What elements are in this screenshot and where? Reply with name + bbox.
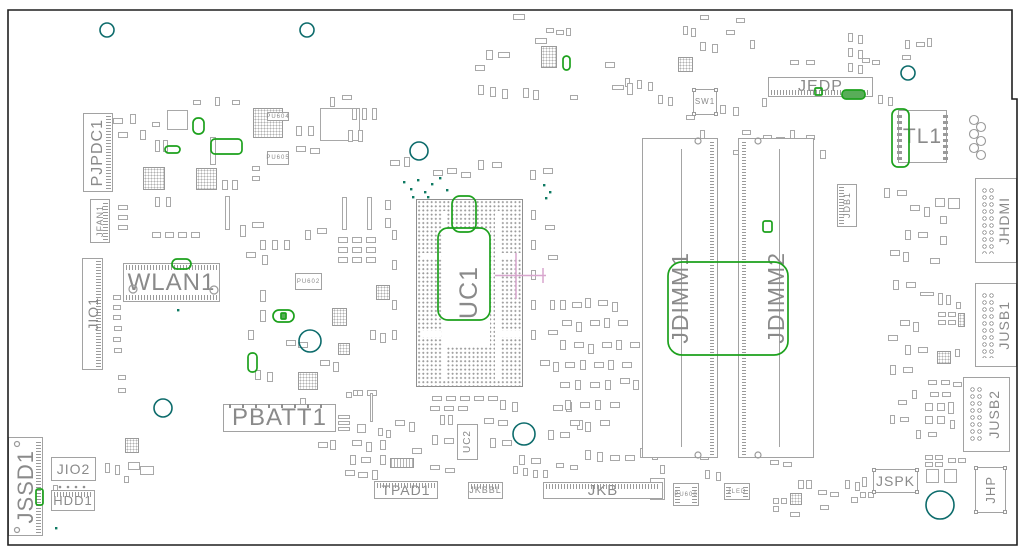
qfn-ic: [196, 168, 217, 190]
passive-component: [937, 403, 945, 411]
passive-component: [352, 440, 362, 446]
passive-component: [790, 512, 800, 517]
passive-component: [338, 257, 348, 263]
passive-component: [252, 222, 264, 228]
passive-component: [848, 33, 853, 42]
uc2-label: UC2: [463, 430, 473, 453]
passive-component: [346, 392, 352, 398]
passive-component: [860, 492, 866, 498]
passive-component: [855, 482, 860, 491]
passive-component: [193, 100, 201, 105]
via-dot: [424, 191, 426, 193]
passive-component: [897, 190, 907, 196]
passive-component: [893, 280, 899, 290]
passive-component: [380, 455, 386, 465]
pin-dot: [59, 486, 62, 489]
component-jdb1: JDB1: [837, 184, 857, 227]
passive-component: [444, 406, 454, 411]
passive-component: [930, 258, 940, 264]
passive-component: [548, 255, 558, 260]
passive-component: [366, 442, 372, 452]
pcb-boardview-diagram: PJPDC1JFAN1JIO1JSSD1JIO2HDD1WLAN1PBATT1U…: [0, 0, 1025, 552]
passive-component: [543, 168, 553, 174]
via-dot: [545, 197, 547, 199]
passive-component: [490, 438, 496, 448]
passive-component: [166, 197, 171, 207]
passive-component: [370, 330, 376, 340]
passive-component: [395, 420, 405, 426]
passive-component: [305, 230, 311, 240]
wlan1-label: WLAN1: [128, 271, 216, 295]
component-pu605: PU605: [267, 151, 289, 165]
passive-component: [380, 440, 386, 450]
passive-component: [570, 95, 578, 100]
passive-component: [210, 137, 216, 165]
passive-component: [872, 60, 880, 65]
passive-component: [155, 197, 160, 207]
passive-component: [310, 148, 320, 154]
passive-component: [903, 367, 913, 373]
passive-component: [338, 247, 348, 253]
passive-component: [726, 30, 735, 35]
passive-component: [820, 505, 829, 510]
qfn-ic: [298, 372, 318, 390]
passive-component: [498, 420, 508, 426]
passive-component: [630, 342, 640, 348]
component-pbatt1: PBATT1: [223, 404, 336, 432]
passive-component: [878, 95, 883, 104]
passive-component: [924, 207, 930, 217]
passive-component: [798, 480, 804, 489]
passive-component: [113, 315, 121, 320]
passive-component: [594, 362, 604, 368]
passive-component: [935, 198, 945, 207]
passive-component: [938, 312, 946, 317]
passive-component: [447, 168, 457, 174]
passive-component: [862, 58, 870, 63]
pin-hatch: [106, 116, 111, 189]
passive-component: [920, 292, 934, 296]
passive-component: [585, 450, 591, 460]
passive-component: [519, 455, 525, 465]
passive-component: [912, 390, 917, 399]
qfn-ic: [376, 285, 390, 300]
jusb2-label: JUSB2: [987, 390, 1001, 439]
passive-component: [298, 342, 308, 348]
passive-component: [385, 200, 391, 210]
jspk-label: JSPK: [876, 474, 915, 488]
passive-component: [851, 497, 858, 503]
corner-pad: [915, 490, 919, 494]
qfn-ic: [125, 438, 139, 453]
bga-void: [421, 253, 441, 259]
passive-component: [490, 87, 496, 97]
passive-component: [612, 302, 618, 312]
component-jhdmi: JHDMI: [975, 178, 1017, 263]
pin-dot: [67, 486, 70, 489]
passive-component: [612, 85, 624, 90]
green-highlight-mark: [563, 56, 570, 70]
passive-component: [474, 396, 484, 401]
passive-component: [597, 452, 603, 462]
passive-component: [286, 340, 296, 346]
passive-component: [806, 60, 815, 65]
passive-component: [903, 252, 909, 262]
passive-component: [240, 225, 246, 237]
pin-hatch: [897, 113, 902, 160]
passive-component: [588, 344, 594, 354]
passive-component: [553, 362, 559, 372]
passive-component: [444, 438, 454, 444]
passive-component: [333, 362, 339, 372]
component-jedp: JEDP: [768, 77, 873, 97]
passive-component: [113, 337, 121, 342]
passive-component: [888, 97, 893, 106]
passive-component: [163, 140, 168, 152]
passive-component: [773, 506, 779, 512]
mounting-hole: [100, 23, 114, 37]
passive-component: [392, 230, 397, 240]
passive-component: [608, 360, 614, 370]
passive-component: [345, 470, 355, 476]
passive-component: [512, 402, 518, 412]
passive-component: [948, 458, 956, 463]
passive-component: [716, 472, 721, 481]
passive-component: [366, 237, 376, 243]
component-jusb1: JUSB1: [975, 283, 1017, 367]
component-pu600: PU600: [673, 483, 699, 506]
passive-component: [602, 342, 612, 348]
passive-component: [358, 472, 368, 478]
passive-component: [946, 295, 951, 305]
passive-component: [770, 460, 779, 465]
passive-component: [830, 492, 839, 497]
passive-component: [545, 225, 555, 230]
passive-component: [260, 240, 266, 250]
passive-component: [535, 38, 547, 44]
passive-component: [580, 402, 590, 408]
passive-component: [357, 424, 366, 433]
passive-component: [546, 28, 554, 33]
component-tl1: TL1: [898, 110, 947, 163]
passive-component: [320, 360, 330, 366]
passive-component: [118, 205, 128, 210]
passive-component: [284, 240, 290, 250]
jdb1-label: JDB1: [843, 192, 852, 218]
passive-component: [531, 330, 536, 340]
bga-void: [442, 211, 447, 381]
passive-component: [361, 457, 371, 463]
component-jhp: JHP: [975, 467, 1006, 513]
corner-pad: [974, 466, 978, 470]
component-uc1: UC1: [416, 199, 523, 387]
passive-component: [565, 362, 575, 368]
passive-component: [683, 26, 688, 35]
passive-component: [350, 455, 356, 465]
passive-component: [533, 470, 538, 478]
passive-component: [937, 416, 945, 424]
passive-component: [600, 420, 610, 426]
passive-component: [262, 255, 268, 265]
passive-component: [330, 440, 336, 450]
corner-pad: [872, 490, 876, 494]
passive-component: [409, 422, 415, 432]
passive-component: [272, 240, 278, 250]
component-jio2: JIO2: [51, 457, 96, 481]
passive-component: [392, 330, 397, 340]
passive-component: [317, 228, 327, 234]
passive-component: [492, 162, 502, 168]
passive-component: [720, 105, 726, 114]
passive-component: [114, 326, 122, 331]
passive-component: [392, 260, 397, 270]
passive-component: [556, 463, 564, 468]
passive-component: [605, 62, 615, 68]
passive-component: [576, 322, 582, 332]
passive-component: [620, 378, 630, 384]
passive-component: [566, 28, 571, 36]
via-dot: [410, 188, 412, 190]
passive-component: [660, 465, 665, 474]
passive-component: [114, 348, 122, 353]
passive-component: [152, 122, 160, 127]
passive-component: [348, 130, 353, 142]
passive-component: [884, 188, 890, 198]
passive-component: [390, 160, 400, 166]
passive-component: [366, 257, 376, 263]
passive-component: [556, 30, 564, 35]
passive-component: [478, 160, 484, 170]
passive-component: [448, 415, 453, 425]
passive-component: [633, 380, 639, 390]
coil-winding: [977, 123, 986, 132]
jhp-label: JHP: [984, 476, 997, 504]
passive-component: [433, 170, 443, 176]
corner-pad: [974, 510, 978, 514]
passive-component: [553, 405, 563, 411]
passive-component: [700, 15, 709, 20]
passive-component: [938, 320, 946, 325]
passive-component: [925, 455, 933, 460]
passive-component: [165, 232, 174, 238]
passive-component: [668, 97, 673, 106]
passive-component: [913, 322, 919, 332]
passive-component: [916, 430, 921, 439]
passive-component: [572, 302, 582, 308]
passive-component: [916, 42, 925, 47]
passive-component: [543, 470, 548, 478]
bga-void: [501, 253, 521, 259]
passive-component: [927, 38, 932, 47]
qfn-ic: [678, 57, 693, 72]
passive-component: [700, 42, 706, 51]
passive-component: [944, 469, 957, 483]
passive-component: [733, 107, 739, 116]
passive-component: [820, 150, 826, 159]
passive-component: [950, 420, 955, 429]
via-dot: [543, 184, 545, 186]
passive-component: [432, 435, 438, 445]
passive-component: [953, 382, 962, 387]
passive-component: [590, 382, 600, 388]
passive-component: [222, 180, 228, 190]
passive-component: [533, 90, 539, 100]
passive-component: [118, 375, 126, 380]
passive-component: [461, 172, 471, 178]
passive-component: [370, 393, 373, 422]
passive-component: [948, 198, 960, 209]
passive-component: [845, 480, 850, 489]
passive-component: [118, 132, 128, 138]
pin-hatch: [943, 113, 948, 160]
passive-component: [595, 400, 601, 410]
pjpdc1-label: PJPDC1: [90, 119, 106, 186]
passive-component: [118, 388, 126, 393]
passive-component: [580, 360, 586, 370]
qfn-ic: [937, 351, 951, 364]
corner-pad: [714, 112, 718, 116]
pin-hatch: [726, 486, 731, 497]
component-jled: JLED: [724, 483, 750, 500]
passive-component: [604, 318, 610, 328]
pin-hatch: [771, 90, 870, 95]
passive-component: [523, 468, 528, 476]
corner-pad: [692, 88, 696, 92]
passive-component: [618, 320, 628, 326]
passive-component: [155, 140, 160, 152]
mounting-hole: [300, 23, 314, 37]
passive-component: [935, 462, 943, 467]
passive-component: [113, 295, 121, 300]
pin-dot: [83, 486, 86, 489]
component-pu604: PU604: [267, 112, 289, 121]
pbatt1-label: PBATT1: [232, 406, 327, 430]
passive-component: [890, 250, 900, 256]
passive-component: [958, 458, 966, 463]
qfn-ic: [332, 308, 347, 326]
passive-component: [531, 458, 541, 464]
passive-component: [267, 372, 273, 382]
corner-pad: [872, 468, 876, 472]
passive-component: [548, 430, 554, 440]
corner-pad: [1003, 466, 1007, 470]
passive-component: [296, 146, 306, 152]
via-dot: [403, 181, 405, 183]
passive-component: [610, 402, 620, 408]
green-highlight-mark: [273, 310, 294, 322]
passive-component: [648, 82, 653, 91]
green-highlight-mark: [281, 313, 286, 319]
passive-component: [948, 312, 956, 317]
uc1-label: UC1: [457, 266, 482, 319]
passive-component: [622, 362, 632, 368]
pin-hatch: [969, 386, 984, 443]
qfn-ic: [790, 493, 802, 505]
passive-component: [890, 365, 896, 375]
mounting-hole: [410, 142, 428, 160]
passive-component: [956, 302, 961, 309]
passive-component: [378, 428, 383, 436]
passive-component: [352, 237, 362, 243]
passive-component: [178, 232, 187, 238]
passive-component: [762, 98, 767, 107]
tl1-label: TL1: [903, 126, 942, 147]
passive-component: [498, 52, 510, 58]
passive-component: [610, 455, 620, 461]
passive-component: [386, 430, 391, 438]
component-jkb: JKB: [543, 482, 663, 499]
passive-component: [440, 415, 445, 425]
passive-component: [488, 396, 498, 401]
passive-component: [560, 432, 570, 438]
pu605-label: PU605: [266, 155, 289, 161]
passive-component: [372, 108, 377, 120]
passive-component: [938, 293, 943, 305]
component-jkbbl: JKBBL: [468, 482, 503, 499]
mounting-hole: [299, 330, 321, 352]
passive-component: [560, 340, 566, 350]
passive-component: [560, 300, 566, 310]
passive-component: [773, 498, 779, 504]
passive-component: [246, 252, 256, 258]
passive-component: [570, 420, 580, 426]
pin-hatch: [981, 292, 996, 358]
qfn-ic: [958, 313, 965, 327]
passive-component: [225, 196, 230, 230]
passive-component: [616, 340, 622, 350]
corner-pad: [692, 112, 696, 116]
passive-component: [358, 130, 363, 142]
passive-component: [900, 417, 909, 422]
sw1-label: SW1: [695, 98, 715, 106]
jusb1-label: JUSB1: [997, 301, 1011, 350]
passive-component: [562, 320, 572, 326]
pin-hatch: [126, 295, 217, 300]
passive-component: [338, 415, 350, 419]
jdimm1-label: JDIMM1: [669, 252, 692, 344]
passive-component: [352, 247, 362, 253]
pin-hatch: [471, 484, 500, 489]
passive-component: [338, 427, 350, 431]
passive-component: [540, 360, 550, 366]
passive-component: [742, 130, 751, 135]
coil-winding: [970, 144, 979, 153]
passive-component: [342, 95, 352, 100]
passive-component: [705, 470, 710, 479]
passive-component: [392, 300, 397, 310]
passive-component: [484, 418, 494, 424]
passive-component: [918, 347, 928, 353]
passive-component: [530, 170, 536, 180]
component-pu602: PU602: [295, 273, 322, 290]
passive-component: [888, 335, 898, 341]
passive-component: [605, 380, 611, 390]
passive-component: [478, 85, 484, 95]
passive-component: [252, 166, 260, 171]
passive-component: [637, 80, 642, 89]
component-jfan1: JFAN1: [90, 199, 110, 243]
passive-component: [430, 406, 440, 411]
passive-component: [191, 232, 200, 238]
passive-component: [898, 400, 907, 405]
jio1-label: JIO1: [86, 297, 100, 331]
passive-component: [115, 465, 120, 475]
pin-hatch: [675, 486, 680, 503]
passive-component: [691, 28, 696, 37]
passive-component: [712, 44, 718, 53]
passive-component: [585, 298, 591, 308]
passive-component: [475, 65, 485, 71]
